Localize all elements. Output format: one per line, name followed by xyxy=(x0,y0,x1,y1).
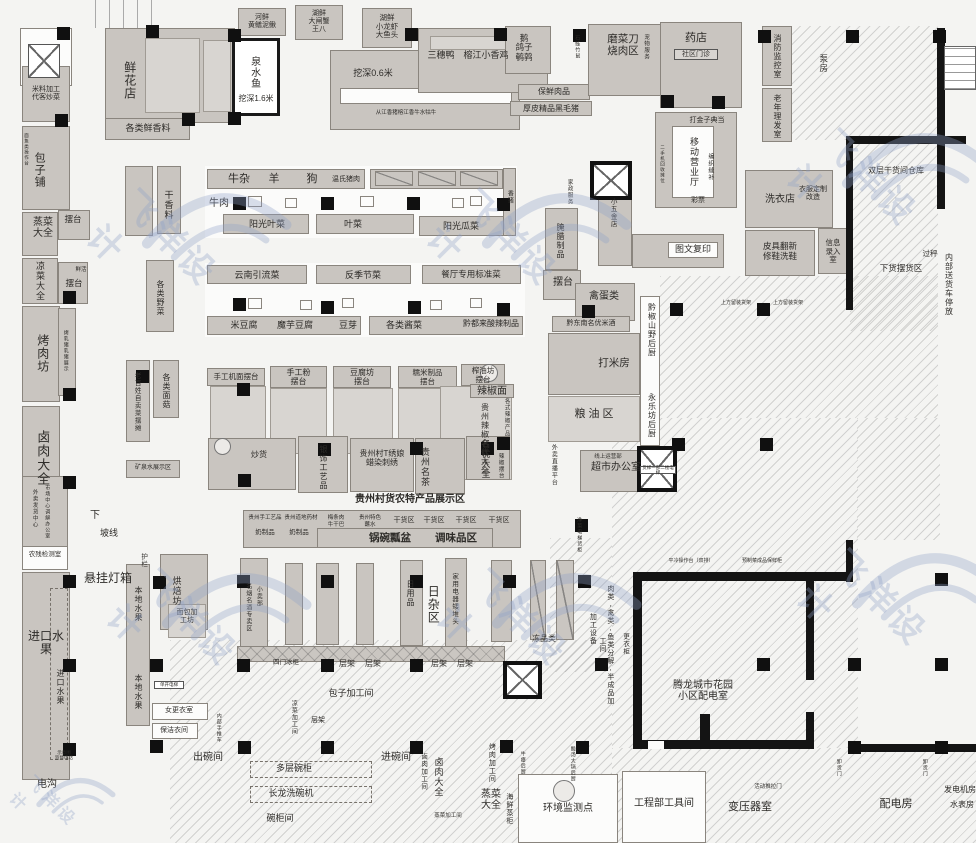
shelf-unit xyxy=(375,171,413,186)
plan-label: 各类鲜香料 xyxy=(108,122,188,135)
column-marker xyxy=(935,658,948,671)
plan-room xyxy=(285,563,303,645)
plan-label: 包子加工间 xyxy=(320,688,382,699)
plan-floor xyxy=(648,741,664,749)
shelf-unit xyxy=(530,560,546,640)
plan-label: 日杂区 xyxy=(424,580,441,628)
plan-hatch-area xyxy=(857,418,940,540)
column-marker xyxy=(321,741,334,754)
plan-label: 衣服定制 改造 xyxy=(794,184,832,204)
plan-label: 豆芽 xyxy=(334,320,362,330)
column-marker xyxy=(500,740,513,753)
plan-wall xyxy=(846,136,853,310)
plan-label: 层架 xyxy=(336,659,358,669)
plan-label: 锅碗瓢盆 xyxy=(362,532,418,545)
plan-label: 蒸菜加工间 xyxy=(428,812,468,820)
plan-label: 农残检测室 xyxy=(24,550,66,560)
plan-room xyxy=(248,298,262,309)
plan-label: 层架 xyxy=(428,659,450,669)
plan-label: 家政服务 xyxy=(565,176,574,208)
plan-label: 宠物服务 xyxy=(641,30,651,64)
plan-wall xyxy=(633,572,853,581)
plan-label: 进碗间 xyxy=(374,751,418,764)
plan-label: 烤肉加工间 xyxy=(486,736,497,790)
plan-label: 外卖直播平台 xyxy=(548,443,558,487)
plan-label: 米豆腐 xyxy=(226,320,262,330)
plan-label: 摆台 xyxy=(550,277,576,288)
plan-label: 保鲜肉品 xyxy=(526,87,582,97)
plan-label: 下货摆货区 xyxy=(872,263,930,274)
elevator-icon xyxy=(503,661,542,699)
plan-label: 泉水鱼 xyxy=(246,52,262,92)
plan-label: 净菜电梯货柜 xyxy=(574,513,583,557)
plan-label: 四门冰柜 xyxy=(266,658,306,667)
plan-label: 温氏猪肉 xyxy=(328,175,364,185)
plan-label: 梅条肉 牛干巴 xyxy=(322,514,350,529)
plan-label: 各类酱菜 xyxy=(380,320,428,330)
plan-wall xyxy=(937,143,945,209)
plan-label: 贵州特色 蘸水 xyxy=(355,514,385,529)
plan-room xyxy=(125,166,153,236)
plan-hatch-area xyxy=(660,276,938,418)
plan-label: 蒸菜 大全 xyxy=(24,216,62,240)
elevator-icon xyxy=(28,44,60,78)
column-marker xyxy=(410,659,423,672)
plan-label: 鲜花店 xyxy=(120,52,138,108)
plan-label: 榨油坊 摆台 xyxy=(463,366,503,385)
substation-room-label: 腾龙城市花园 小区配电室 xyxy=(664,678,742,704)
plan-label: 二手机回收摊位 xyxy=(659,142,667,186)
plan-label: 打米房 xyxy=(594,358,634,370)
plan-label: 市场中心调解办公室 xyxy=(42,480,51,544)
column-marker xyxy=(933,30,946,43)
plan-label: 牛肉 xyxy=(204,198,234,210)
plan-label: 碗柜间 xyxy=(258,812,302,824)
plan-label: 干货区 xyxy=(390,516,418,525)
column-marker xyxy=(321,575,334,588)
plan-label: 魔芋豆腐 xyxy=(272,320,318,330)
plan-label: 摆台 xyxy=(62,278,86,289)
plan-label: 长龙洗碗机 xyxy=(258,788,324,799)
column-marker xyxy=(503,575,516,588)
plan-label: 云南引流菜 xyxy=(226,270,288,280)
plan-label: 出碗间 xyxy=(186,751,230,764)
plan-label: 单开电梯 xyxy=(154,681,184,689)
plan-label: 反季节菜 xyxy=(336,270,390,280)
plan-label: 面包加 工坊 xyxy=(170,608,204,626)
plan-label: 护栏 xyxy=(138,548,148,572)
plan-room xyxy=(430,300,442,310)
plan-label: 牛杂 xyxy=(220,173,258,186)
plan-label: 皮具翻新 修鞋洗鞋 xyxy=(748,240,812,264)
plan-label: 银饰工艺品 xyxy=(316,442,329,492)
plan-label: 餐厅专用标准菜 xyxy=(428,270,514,280)
column-marker xyxy=(661,95,674,108)
plan-label: 三穗鸭 xyxy=(422,50,460,61)
plan-label: 黔椒山野后厨 xyxy=(644,298,658,362)
plan-label: 坡线 xyxy=(94,528,124,539)
plan-wall xyxy=(633,572,642,749)
plan-label: 奶制品 xyxy=(284,528,314,537)
stairs-icon xyxy=(944,46,976,90)
column-marker xyxy=(63,575,76,588)
plan-room xyxy=(300,300,312,310)
plan-label: 药店 xyxy=(676,32,716,45)
column-marker xyxy=(494,28,507,41)
plan-label: 挖深0.6米 xyxy=(344,68,402,79)
plan-label: 日用品 xyxy=(404,570,415,616)
plan-label: 挖深1.6米 xyxy=(234,94,278,104)
plan-label: 豆腐坊 摆台 xyxy=(335,368,389,387)
plan-label: 过秤 xyxy=(918,249,942,259)
plan-room xyxy=(285,198,297,208)
plan-label: 配电房 xyxy=(872,798,920,811)
plan-label: 双层干货间仓库 xyxy=(862,166,930,176)
column-marker xyxy=(63,476,76,489)
column-marker xyxy=(55,114,68,127)
plan-label: 贵州手工艺品 xyxy=(246,514,284,522)
plan-label: 糯米制品 摆台 xyxy=(400,368,455,387)
column-marker xyxy=(233,197,246,210)
column-marker xyxy=(150,659,163,672)
column-marker xyxy=(935,573,948,586)
column-marker xyxy=(848,741,861,754)
plan-label: 奶制品 xyxy=(250,528,280,537)
plan-label: 进口水果 xyxy=(23,636,69,650)
plan-room xyxy=(360,196,374,207)
pump-room-hatch xyxy=(790,26,938,140)
plan-wall xyxy=(852,744,976,752)
plan-label: 悬挂灯箱 xyxy=(78,572,138,586)
column-marker xyxy=(848,658,861,671)
plan-label: 米料加工 代客炒菜 xyxy=(25,84,67,104)
plan-label: 活动推拉门 xyxy=(746,783,790,791)
plan-label: 烘焙坊 xyxy=(170,570,183,612)
plan-label: 外卖发货中心 xyxy=(30,482,39,534)
plan-label: 永乐坊后厨 xyxy=(644,386,658,444)
plan-room xyxy=(491,560,512,642)
plan-label: 厚皮精品黑毛猪 xyxy=(514,104,588,114)
plan-label: 线上运营部 xyxy=(590,453,626,461)
plan-label: 狗 xyxy=(300,173,324,186)
plan-label: 下 xyxy=(88,510,102,522)
column-marker xyxy=(237,659,250,672)
plan-room xyxy=(470,196,482,206)
plan-room xyxy=(452,198,464,208)
plan-label: 摆台 xyxy=(60,214,86,225)
plan-label: 石蛙竹鼠 xyxy=(572,30,581,64)
column-marker xyxy=(228,112,241,125)
shelf-unit xyxy=(556,560,574,640)
plan-label: 粮 油 区 xyxy=(566,408,622,421)
column-marker xyxy=(670,303,683,316)
column-marker xyxy=(408,301,421,314)
column-marker xyxy=(153,576,166,589)
plan-wall xyxy=(806,572,814,680)
column-marker xyxy=(146,25,159,38)
column-marker xyxy=(63,388,76,401)
plan-label: 干货区 xyxy=(485,516,513,525)
plan-label: 更衣柜 xyxy=(620,628,630,660)
plan-label: 叶菜 xyxy=(338,219,368,229)
plan-label: 凉菜加工间 xyxy=(288,696,298,738)
plan-label: 羊 xyxy=(262,173,286,186)
floor-plan-canvas: 鲜花店各类鲜香料泉水鱼挖深1.6米河鲜 黄鳝泥鳅湖鲜 大闸蟹 王八湖鲜 小龙虾 … xyxy=(0,0,976,843)
column-marker xyxy=(935,741,948,754)
column-marker xyxy=(321,197,334,210)
display-area-title: 贵州村货农特产品展示区 xyxy=(350,494,470,506)
plan-label: 干货区 xyxy=(420,516,448,525)
column-marker xyxy=(150,740,163,753)
plan-label: 各类面菇 xyxy=(158,368,173,414)
plan-label: 贵州道地药材 xyxy=(282,514,320,522)
plan-room xyxy=(356,563,374,645)
plan-label: 卸货门 xyxy=(834,754,842,782)
plan-label: 香猪 xyxy=(504,184,514,210)
plan-label: 进口水果 xyxy=(53,660,66,714)
column-marker xyxy=(238,741,251,754)
plan-label: 消防监控室 xyxy=(770,30,783,82)
plan-label: 名优大全 xyxy=(479,439,492,479)
plan-wall xyxy=(848,136,966,144)
plan-label: 货梯一部二楼电梯 xyxy=(640,466,676,474)
plan-label: 电沟 xyxy=(30,778,64,791)
plan-label: 酸汤大锅后厨 xyxy=(568,743,576,785)
plan-label: 预制菜成品保鲜柜 xyxy=(730,558,794,566)
plan-label: 湖鲜 小龙虾 大鱼头 xyxy=(364,10,410,44)
plan-label: 上方留装货架 xyxy=(766,300,810,308)
plan-label: 阳光叶菜 xyxy=(238,219,296,229)
plan-label: 保洁衣间 xyxy=(154,726,194,736)
plan-label: 社区门诊 xyxy=(674,49,718,60)
column-marker xyxy=(63,291,76,304)
plan-label: 发电机房 xyxy=(944,785,976,795)
plan-label: 多层碗柜 xyxy=(266,763,322,774)
plan-label: 小卖部 xyxy=(254,582,262,610)
column-marker xyxy=(407,197,420,210)
plan-label: 泵房 xyxy=(816,48,830,78)
plan-label: 凉菜大全 xyxy=(30,260,50,302)
plan-label: 老年理发室 xyxy=(770,92,783,140)
plan-label: 卤肉加工间 xyxy=(418,748,428,796)
shelf-unit xyxy=(418,171,456,186)
plan-label: 打金子典当 xyxy=(680,116,734,126)
plan-label: 卸货门 xyxy=(920,754,928,782)
plan-label: 鲜活 xyxy=(72,266,90,274)
plan-label: 卤肉大全 xyxy=(431,748,446,806)
plan-label: 贵州名茶 xyxy=(418,446,432,488)
column-marker xyxy=(233,298,246,311)
plan-label: 包子铺 xyxy=(30,140,48,200)
plan-label: 女更衣室 xyxy=(158,706,200,716)
plan-label: 干香料 xyxy=(161,184,176,226)
plan-label: 面鱼类操作台 xyxy=(23,130,31,168)
plan-label: 黔东南名优米酒 xyxy=(556,319,626,329)
plan-label: 禽蛋类 xyxy=(582,291,626,303)
plan-label: 水表房 xyxy=(948,800,976,810)
plan-label: 信息 录入 室 xyxy=(820,234,846,270)
plan-label: 名烟名酒专卖区 xyxy=(243,576,252,638)
column-marker xyxy=(238,474,251,487)
plan-label: 黔都来酸辣制品 xyxy=(458,320,524,329)
column-marker xyxy=(846,30,859,43)
plan-label: 腌腊制品 xyxy=(553,218,566,264)
plan-label: 各式辣椒产品 xyxy=(502,392,511,442)
plan-label: 变压器室 xyxy=(718,801,782,814)
plan-room xyxy=(248,196,262,207)
column-marker xyxy=(578,575,591,588)
plan-label: 牛瘪后厨 xyxy=(518,746,526,780)
plan-label: 图文复印 xyxy=(670,244,716,255)
plan-label: 阳光瓜菜 xyxy=(432,221,490,231)
plan-label: 上方留装货架 xyxy=(714,300,758,308)
plan-label: 炒货 xyxy=(244,450,274,460)
plan-room xyxy=(145,38,200,113)
column-marker xyxy=(237,383,250,396)
column-marker xyxy=(760,438,773,451)
plan-label: 辣椒摆台 xyxy=(496,450,505,482)
column-marker xyxy=(582,305,595,318)
plan-label: 超市办公室 xyxy=(586,462,646,474)
plan-label: 平冷操作台（双排） xyxy=(662,558,720,566)
plan-label: 移动营业厅 xyxy=(687,134,701,190)
plan-label: 海鲜蒸柜 xyxy=(504,788,514,830)
plan-label: 小五金店 xyxy=(607,194,618,232)
grid-ticks xyxy=(95,0,165,28)
plan-label: 编织缝补 xyxy=(705,148,714,186)
plan-label: 手工粉 摆台 xyxy=(272,368,325,387)
plan-label: 烤乳猪乳猪展示 xyxy=(60,318,70,384)
plan-room xyxy=(470,298,482,308)
plan-label: 湖鲜 大闸蟹 王八 xyxy=(297,7,341,37)
plan-label: 调味品区 xyxy=(428,532,484,545)
plan-label: 本地水果 xyxy=(131,582,144,626)
shelf-unit xyxy=(460,171,498,186)
plan-label: 肉类,禽类,鱼类分解,半成品加工间 xyxy=(600,583,612,707)
plan-wall xyxy=(700,740,808,749)
plan-label: 各类野菜 xyxy=(152,272,167,324)
plan-label: 老百姓自卖菜摆摊 xyxy=(131,364,142,440)
plan-label: 榕江小香鸡 xyxy=(458,50,514,61)
plan-label: 示意图 监督电话 xyxy=(50,748,78,762)
plan-label: 鹅 鸽子 鹌鹑 xyxy=(510,30,538,66)
column-marker xyxy=(757,658,770,671)
column-marker xyxy=(712,96,725,109)
column-marker xyxy=(497,303,510,316)
plan-label: 手工机面摆台 xyxy=(208,372,264,383)
plan-label: 冻品类 xyxy=(522,634,566,644)
column-marker xyxy=(321,301,334,314)
plan-room xyxy=(203,40,231,112)
plan-label: 内部送货车停放 xyxy=(942,248,954,320)
plan-label: 层架 xyxy=(454,659,476,669)
plan-label: 彩票 xyxy=(684,196,712,205)
circle-marker xyxy=(214,438,231,455)
plan-label: 层架 xyxy=(362,659,384,669)
plan-label: 干货区 xyxy=(452,516,480,525)
column-marker xyxy=(321,659,334,672)
column-marker xyxy=(576,741,589,754)
plan-label: 贵州村T绣娘 蜡染刺绣 xyxy=(352,448,412,470)
plan-label: 工程部工具间 xyxy=(624,798,704,810)
plan-label: 内部手推车 xyxy=(214,710,222,746)
plan-label: 加工设备 xyxy=(587,610,598,648)
plan-label: 环境监测点 xyxy=(534,803,602,815)
plan-room xyxy=(342,298,354,308)
plan-label: 本地水果 xyxy=(131,670,144,714)
column-marker xyxy=(57,27,70,40)
plan-label: 烤肉坊 xyxy=(32,314,52,392)
plan-label: 层架 xyxy=(306,716,330,726)
plan-label: 家用电器矮堆头 xyxy=(449,564,459,634)
plan-label: 河鲜 黄鳝泥鳅 xyxy=(239,10,285,34)
plan-label: 蒸菜 大全 xyxy=(476,788,506,812)
plan-label: 从江香猪榕江香牛水牯牛 xyxy=(362,109,450,117)
plan-label: 矿泉水展示区 xyxy=(128,464,178,473)
